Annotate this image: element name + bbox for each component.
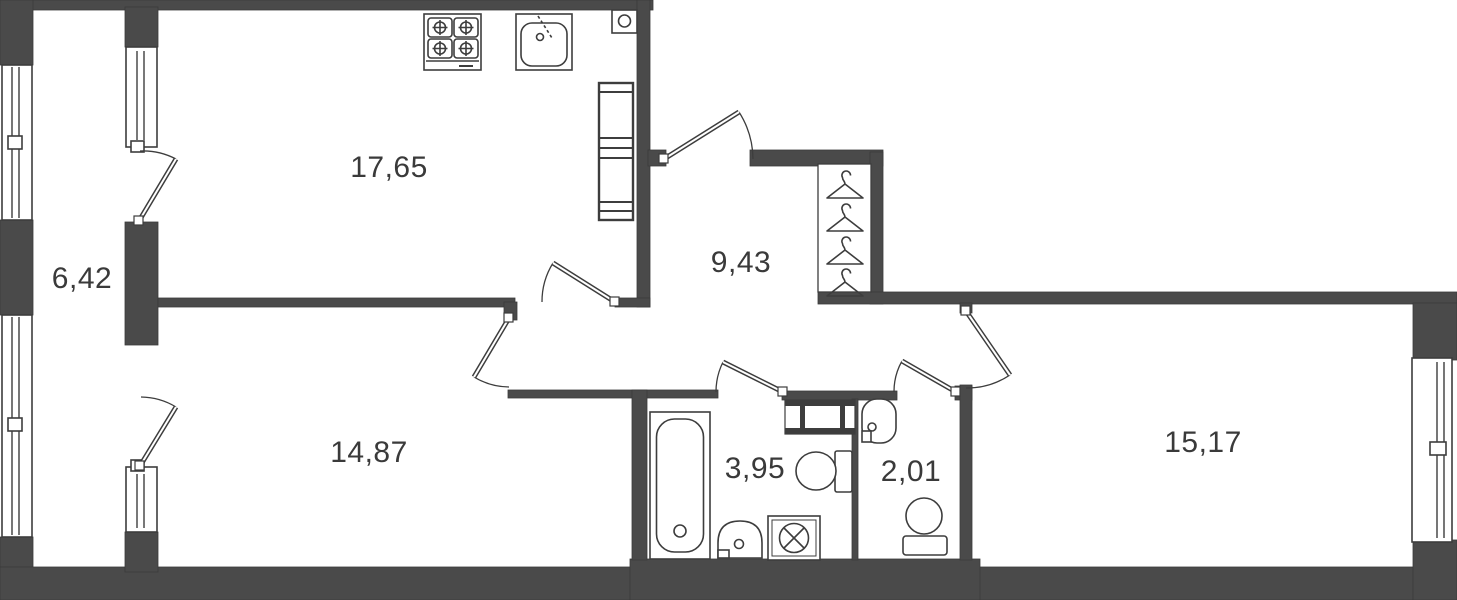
room-label-toilet: 2,01 xyxy=(881,455,941,488)
kitchen-balcony-window-unit xyxy=(126,47,157,152)
room-label-living-room: 15,17 xyxy=(1164,426,1242,459)
toilet-icon xyxy=(903,498,947,555)
room-label-bedroom: 14,87 xyxy=(330,436,408,469)
balcony-window-bottom-left xyxy=(2,315,32,537)
washing-machine-icon xyxy=(768,516,820,560)
walls xyxy=(0,0,1457,600)
bathroom-door-swing-icon xyxy=(716,362,787,396)
bedroom-balcony-window-unit xyxy=(126,460,157,532)
kitchen-balcony-door-swing-icon xyxy=(134,151,176,225)
room-label-bathroom: 3,95 xyxy=(725,452,785,485)
toilet-door-swing-icon xyxy=(894,361,960,396)
room-label-kitchen: 17,65 xyxy=(350,151,428,184)
washbasin-icon xyxy=(862,399,896,443)
kitchen-door-swing-icon xyxy=(542,263,619,306)
floor-plan-drawing: 17,65 6,42 9,43 14,87 3,95 2,01 15,17 xyxy=(0,0,1457,600)
tall-cabinet-icon xyxy=(599,83,633,220)
wardrobe xyxy=(818,164,871,296)
washbasin-icon xyxy=(718,521,762,558)
bedroom-balcony-door-swing-icon xyxy=(135,397,176,470)
room-label-balcony: 6,42 xyxy=(52,262,112,295)
bedroom-door-swing-icon xyxy=(474,313,513,387)
toilet-icon xyxy=(796,451,852,492)
balcony-window-top-left xyxy=(2,65,32,220)
room-label-hallway: 9,43 xyxy=(711,246,771,279)
stove-icon xyxy=(424,14,481,70)
vent-shaft-icon xyxy=(612,10,637,33)
entrance-door-swing-icon xyxy=(659,112,753,163)
living-room-door-swing-icon xyxy=(961,306,1010,388)
kitchen-sink-icon xyxy=(516,14,572,70)
living-room-window xyxy=(1412,358,1452,542)
bathroom-shelf-icon xyxy=(785,400,855,434)
floor-plan: 17,65 6,42 9,43 14,87 3,95 2,01 15,17 xyxy=(0,0,1457,600)
bathtub-icon xyxy=(650,412,710,559)
